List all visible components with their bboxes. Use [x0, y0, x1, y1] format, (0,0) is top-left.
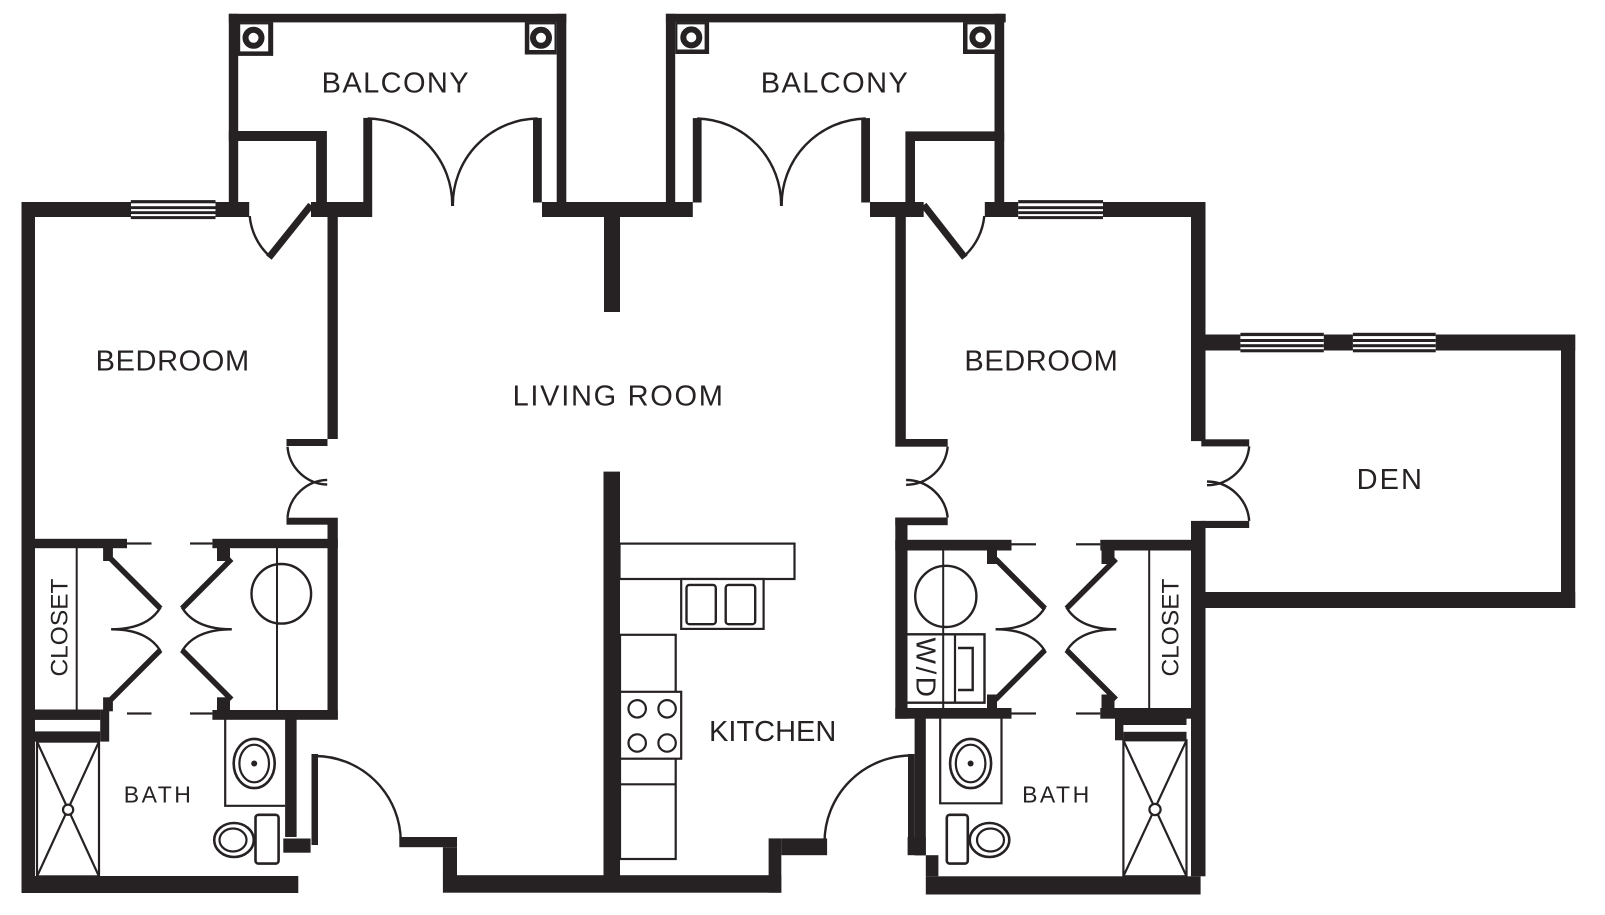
svg-text:BEDROOM: BEDROOM — [964, 346, 1118, 378]
svg-text:CLOSET: CLOSET — [47, 578, 74, 676]
svg-text:BATH: BATH — [124, 782, 194, 808]
svg-text:W/D: W/D — [911, 638, 942, 700]
svg-text:BEDROOM: BEDROOM — [96, 346, 250, 378]
svg-text:LIVING ROOM: LIVING ROOM — [513, 381, 725, 413]
svg-text:BATH: BATH — [1022, 782, 1092, 808]
svg-text:BALCONY: BALCONY — [761, 68, 909, 100]
svg-text:CLOSET: CLOSET — [1157, 578, 1184, 676]
svg-text:DEN: DEN — [1357, 464, 1424, 496]
svg-text:BALCONY: BALCONY — [322, 68, 470, 100]
svg-text:KITCHEN: KITCHEN — [709, 716, 836, 748]
